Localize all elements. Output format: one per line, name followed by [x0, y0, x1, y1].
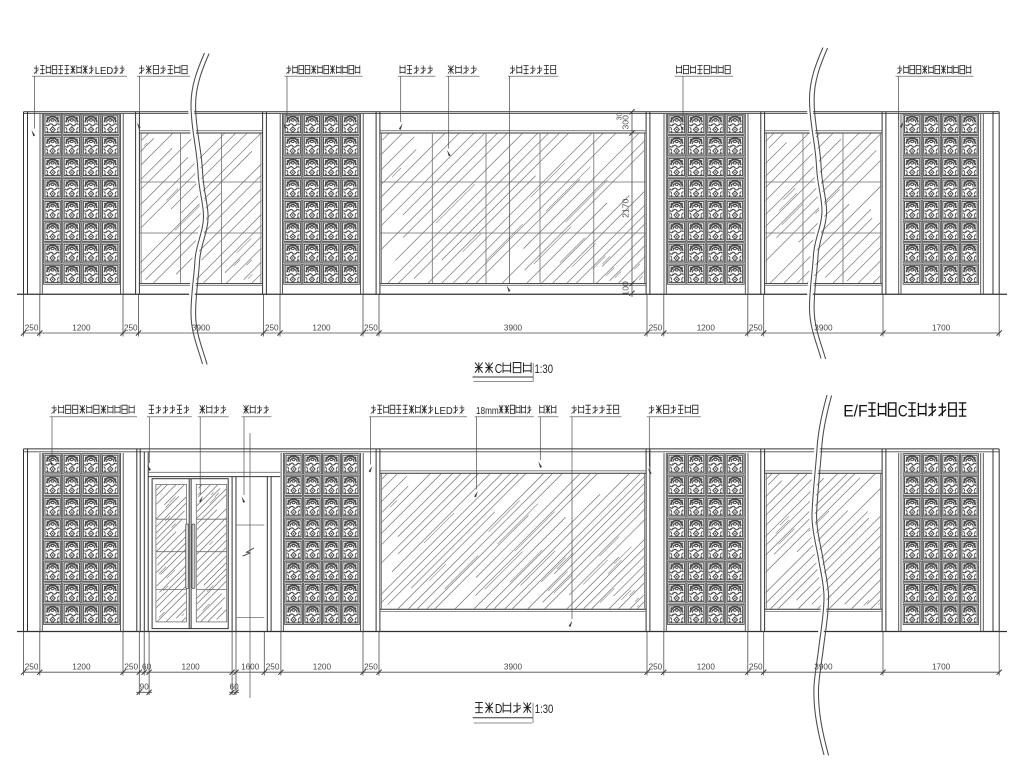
svg-text:3900: 3900: [814, 662, 833, 671]
svg-text:250: 250: [749, 662, 763, 671]
svg-text:2170: 2170: [621, 199, 631, 218]
svg-text:1200: 1200: [72, 662, 91, 671]
svg-text:D: D: [495, 702, 503, 716]
svg-text:250: 250: [265, 323, 279, 332]
svg-text:C: C: [495, 362, 503, 376]
svg-text:1:30: 1:30: [535, 704, 554, 716]
svg-text:1700: 1700: [932, 662, 951, 671]
svg-text:250: 250: [25, 323, 39, 332]
svg-text:250: 250: [364, 323, 378, 332]
svg-text:250: 250: [124, 323, 138, 332]
svg-text:250: 250: [649, 662, 663, 671]
svg-text:250: 250: [266, 662, 280, 671]
svg-text:1700: 1700: [932, 323, 951, 332]
svg-text:LED: LED: [95, 66, 114, 77]
svg-text:1200: 1200: [313, 662, 332, 671]
svg-text:250: 250: [649, 323, 663, 332]
svg-text:1200: 1200: [697, 323, 716, 332]
svg-text:3900: 3900: [814, 323, 833, 332]
svg-text:250: 250: [124, 662, 138, 671]
svg-text:3900: 3900: [504, 662, 523, 671]
svg-text:250: 250: [25, 662, 39, 671]
svg-text:1200: 1200: [697, 662, 716, 671]
svg-text:E/F: E/F: [843, 403, 868, 421]
svg-text:3900: 3900: [192, 323, 211, 332]
svg-text:250: 250: [364, 662, 378, 671]
svg-text:1:30: 1:30: [535, 364, 554, 376]
svg-text:100: 100: [621, 281, 631, 296]
svg-text:C: C: [898, 403, 908, 421]
svg-text:250: 250: [749, 323, 763, 332]
svg-text:18mm: 18mm: [476, 406, 499, 417]
svg-text:1200: 1200: [181, 662, 200, 671]
svg-text:60: 60: [142, 662, 152, 671]
svg-text:1600: 1600: [241, 662, 260, 671]
svg-text:1200: 1200: [312, 323, 331, 332]
svg-text:3900: 3900: [504, 323, 523, 332]
svg-text:LED: LED: [434, 406, 453, 417]
svg-text:90: 90: [140, 682, 150, 691]
svg-text:60: 60: [230, 682, 240, 691]
svg-text:1200: 1200: [72, 323, 91, 332]
svg-text:30: 30: [617, 113, 624, 121]
